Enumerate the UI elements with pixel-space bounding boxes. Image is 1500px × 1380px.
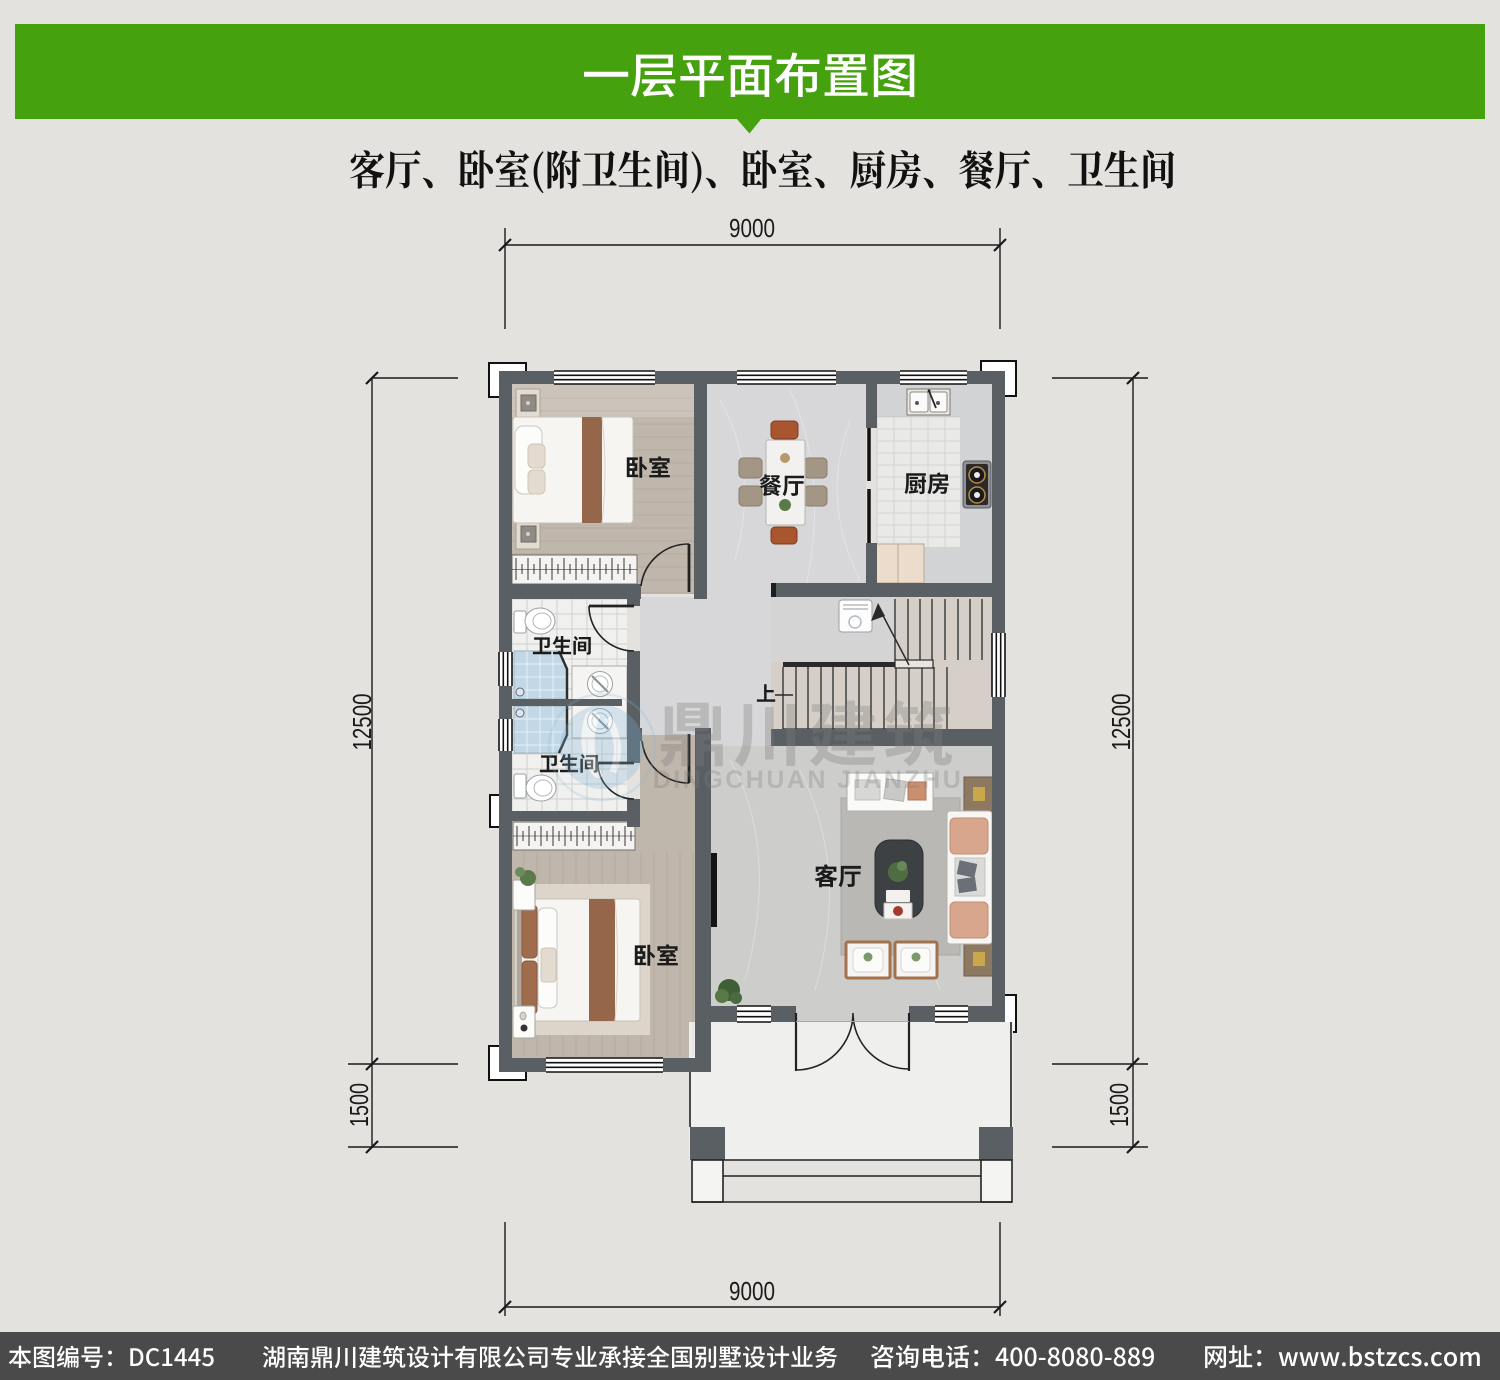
svg-text:DINGCHUAN JIANZHU: DINGCHUAN JIANZHU (653, 766, 964, 794)
svg-text:9000: 9000 (729, 213, 775, 243)
svg-text:1500: 1500 (1104, 1083, 1134, 1127)
svg-text:12500: 12500 (347, 694, 377, 751)
svg-text:1500: 1500 (344, 1083, 374, 1127)
svg-text:12500: 12500 (1106, 694, 1136, 751)
svg-text:9000: 9000 (729, 1276, 775, 1306)
